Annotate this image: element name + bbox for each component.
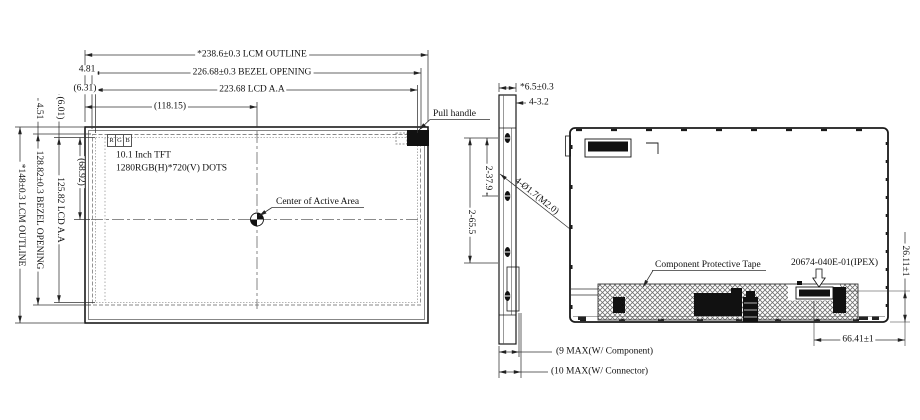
- rgb-pixel-marker: R G B: [107, 134, 131, 147]
- dim-hole-span1-label: 2-37.9: [482, 164, 492, 193]
- dim-center-y-label: (68.92): [75, 156, 85, 188]
- dim-bezel-width-label: 226.68±0.3 BEZEL OPENING: [191, 68, 314, 78]
- dim-bezel-top-offset-label: 4.51: [33, 101, 43, 122]
- drawing-linework: [0, 0, 920, 420]
- back-pull-handle-shape: [585, 139, 631, 157]
- side-dimension-lines: [464, 83, 570, 378]
- dim-boss-label: 4-3.2: [529, 98, 549, 108]
- center-of-active-area-label: Center of Active Area: [276, 198, 359, 208]
- dim-aa-left-offset-label: (6.31): [72, 84, 99, 94]
- side-mounting-holes: [505, 133, 511, 301]
- dim-lcm-height-label: *148±0.3 LCM OUTLINE: [15, 162, 25, 269]
- pull-handle-shape: [396, 130, 429, 146]
- panel-type-label: 10.1 Inch TFT: [116, 151, 171, 161]
- active-area-center-mark: [251, 213, 264, 226]
- pull-handle-label: Pull handle: [433, 110, 476, 120]
- dim-hole-span2-label: 2-65.5: [465, 208, 475, 237]
- dim-aa-width-label: 223.68 LCD A.A: [217, 85, 286, 95]
- side-view-outline: [499, 95, 519, 344]
- dim-thickness-label: *6.5±0.3: [520, 83, 554, 93]
- rgb-b: B: [123, 134, 132, 147]
- dim-aa-top-offset-label: (6.01): [54, 95, 64, 122]
- engineering-drawing: *238.6±0.3 LCM OUTLINE 226.68±0.3 BEZEL …: [0, 0, 920, 420]
- protective-tape-label: Component Protective Tape: [655, 261, 761, 271]
- dim-max-component-label: (9 MAX(W/ Component): [556, 347, 653, 357]
- connector-part-label: 20674-040E-01(IPEX): [791, 259, 878, 269]
- panel-resolution-label: 1280RGB(H)*720(V) DOTS: [116, 164, 227, 174]
- dim-connector-vertical-label: 26.11±1: [899, 244, 909, 279]
- dim-bezel-left-offset-label: 4.81: [77, 65, 98, 75]
- dim-lcm-width-label: *238.6±0.3 LCM OUTLINE: [195, 50, 309, 60]
- dim-center-x-label: (118.15): [152, 102, 188, 112]
- dim-aa-height-label: 125.82 LCD A.A: [54, 175, 64, 244]
- dim-max-connector-label: (10 MAX(W/ Connector): [551, 367, 648, 377]
- dim-bezel-height-label: 128.82±0.3 BEZEL OPENING: [33, 149, 43, 272]
- dim-connector-horizontal-label: 66.41±1: [840, 335, 875, 345]
